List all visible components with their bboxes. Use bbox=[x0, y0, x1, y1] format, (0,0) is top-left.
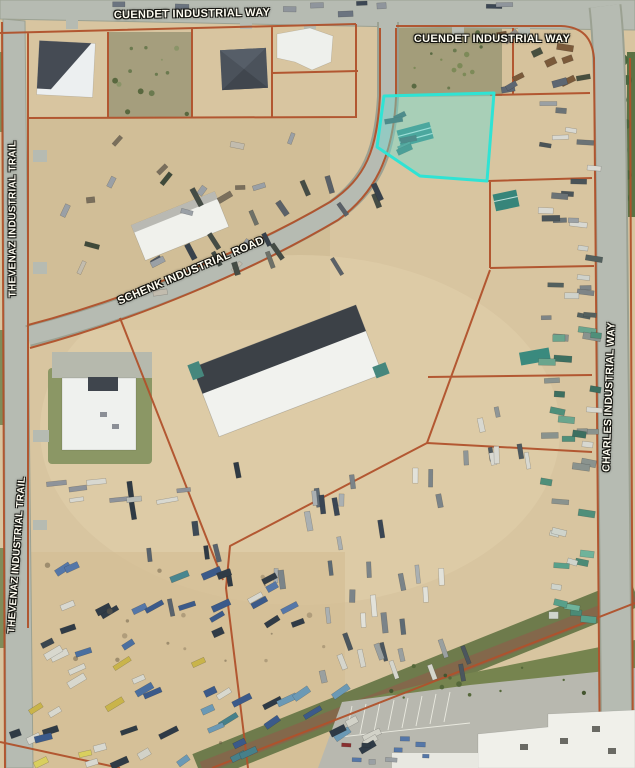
road-label-thevenaz-upper: THEVENAZ INDUSTRIAL TRAIL bbox=[8, 141, 19, 298]
building-office bbox=[62, 377, 136, 450]
aerial-map[interactable]: CUENDET INDUSTRIAL WAY CUENDET INDUSTRIA… bbox=[0, 0, 635, 768]
building-topleft bbox=[37, 41, 96, 98]
scrub-patch-west bbox=[109, 32, 192, 117]
map-canvas bbox=[0, 0, 635, 768]
building-grayroof bbox=[220, 48, 268, 90]
road-label-cuendet-right: CUENDET INDUSTRIAL WAY bbox=[414, 33, 570, 45]
parking-office bbox=[52, 352, 152, 378]
